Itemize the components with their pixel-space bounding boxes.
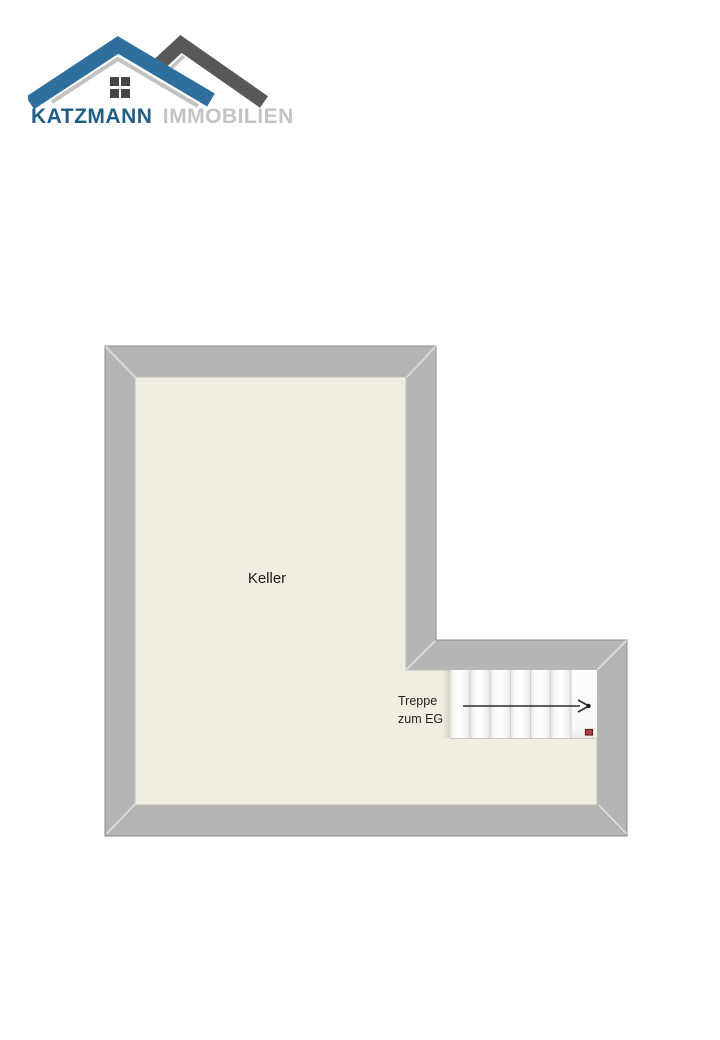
room-floor xyxy=(135,377,597,805)
room-label-keller: Keller xyxy=(248,570,286,587)
stairs-label-line2: zum EG xyxy=(398,712,443,726)
staircase-left-shadow xyxy=(442,670,450,738)
staircase xyxy=(442,670,597,739)
stairs-label-line1: Treppe xyxy=(398,694,437,708)
red-marker xyxy=(586,730,593,736)
page: KATZMANN IMMOBILIEN xyxy=(0,0,720,1040)
floorplan-basement: Keller Treppe zum EG xyxy=(0,0,720,1040)
